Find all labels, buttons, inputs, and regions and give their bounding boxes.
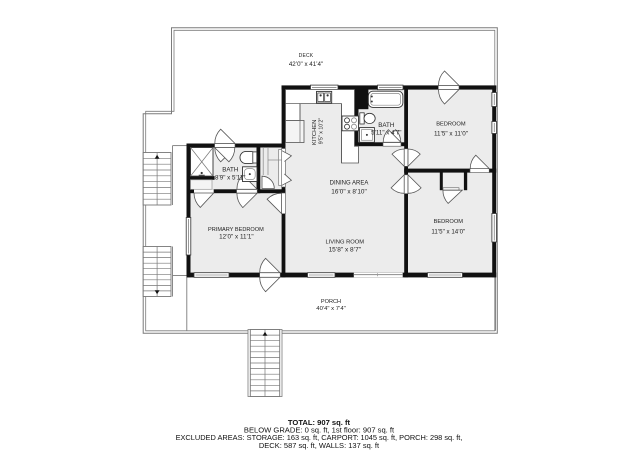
svg-text:BATH: BATH [222, 166, 238, 173]
svg-text:9’5" x 10’2": 9’5" x 10’2" [318, 118, 324, 145]
svg-text:BEDROOM: BEDROOM [436, 121, 466, 127]
svg-text:PRIMARY BEDROOM: PRIMARY BEDROOM [208, 227, 264, 233]
svg-text:BATH: BATH [378, 122, 394, 129]
svg-text:DINING AREA: DINING AREA [330, 181, 369, 187]
svg-text:40’4" x 7’4": 40’4" x 7’4" [316, 306, 345, 312]
svg-text:16’0" x 8’10": 16’0" x 8’10" [331, 188, 366, 195]
svg-text:15’8" x 8’7": 15’8" x 8’7" [329, 247, 362, 254]
svg-text:8’9" x 5’11": 8’9" x 5’11" [215, 175, 245, 182]
svg-text:11’5" x 14’0": 11’5" x 14’0" [431, 229, 465, 236]
svg-text:DECK: DECK [299, 53, 314, 59]
svg-text:BEDROOM: BEDROOM [434, 219, 464, 225]
svg-text:12’0" x 11’1": 12’0" x 11’1" [219, 233, 253, 240]
svg-text:5’11" x 4’7": 5’11" x 4’7" [371, 130, 401, 137]
svg-text:LIVING ROOM: LIVING ROOM [325, 240, 364, 246]
svg-text:DECK: 587 sq. ft, WALLS: 137 s: DECK: 587 sq. ft, WALLS: 137 sq. ft [259, 441, 380, 450]
svg-text:11’5" x 11’0": 11’5" x 11’0" [434, 130, 468, 137]
svg-text:PORCH: PORCH [321, 299, 341, 305]
svg-text:42’0" x 41’4": 42’0" x 41’4" [289, 61, 323, 68]
svg-text:KITCHEN: KITCHEN [312, 120, 318, 145]
